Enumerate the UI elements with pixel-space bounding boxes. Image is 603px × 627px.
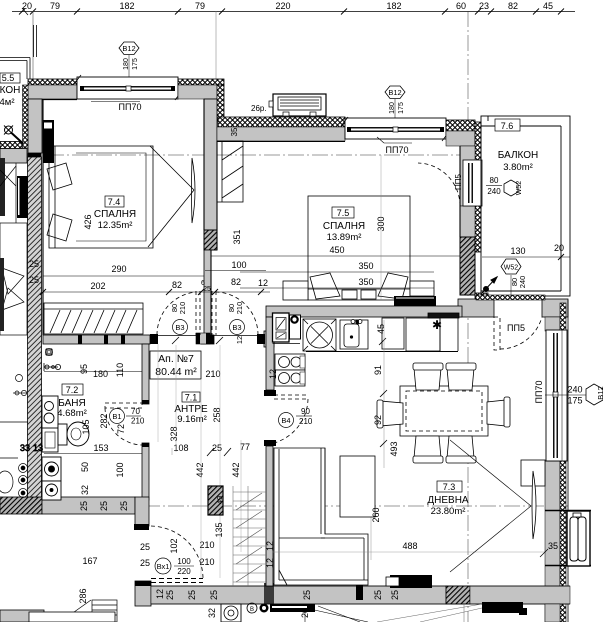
svg-text:45: 45 <box>543 1 553 11</box>
svg-text:12: 12 <box>265 558 275 568</box>
svg-text:B3: B3 <box>232 323 241 332</box>
svg-text:80: 80 <box>490 176 499 185</box>
svg-text:210: 210 <box>299 417 313 426</box>
svg-text:9.16m²: 9.16m² <box>177 414 207 425</box>
svg-text:7.1: 7.1 <box>185 393 198 403</box>
svg-text:ДНЕВНА: ДНЕВНА <box>427 495 469 506</box>
svg-text:B1: B1 <box>112 412 121 421</box>
svg-text:80.44 m²: 80.44 m² <box>155 366 197 378</box>
svg-text:350: 350 <box>358 277 373 287</box>
svg-text:442: 442 <box>231 462 241 477</box>
svg-text:100: 100 <box>115 462 125 477</box>
svg-text:ПП70: ПП70 <box>534 381 544 404</box>
svg-text:210: 210 <box>235 302 244 315</box>
svg-text:175: 175 <box>567 396 582 406</box>
svg-text:70: 70 <box>131 407 140 416</box>
svg-text:110: 110 <box>115 363 125 377</box>
svg-text:82: 82 <box>231 277 241 287</box>
svg-text:91: 91 <box>373 365 383 375</box>
svg-text:B4: B4 <box>281 416 290 425</box>
svg-text:328: 328 <box>169 426 179 441</box>
svg-text:4м²: 4м² <box>0 97 14 108</box>
svg-text:12: 12 <box>265 541 275 551</box>
svg-text:105: 105 <box>81 419 91 434</box>
svg-text:493: 493 <box>389 441 399 456</box>
svg-text:95: 95 <box>79 364 89 374</box>
svg-text:90: 90 <box>301 407 310 416</box>
svg-text:167: 167 <box>82 556 97 566</box>
svg-text:35: 35 <box>230 127 239 136</box>
svg-text:25: 25 <box>373 590 383 600</box>
svg-text:26р.: 26р. <box>251 104 267 113</box>
svg-text:50: 50 <box>80 462 90 472</box>
svg-text:45: 45 <box>376 324 386 334</box>
svg-text:5.5: 5.5 <box>2 73 15 83</box>
svg-text:СПАЛНЯ: СПАЛНЯ <box>323 221 365 232</box>
svg-text:СПАЛНЯ: СПАЛНЯ <box>94 209 136 220</box>
svg-text:3.80m²: 3.80m² <box>503 162 533 173</box>
svg-text:ПП70: ПП70 <box>386 145 409 155</box>
svg-text:32: 32 <box>207 608 217 618</box>
svg-text:23.80m²: 23.80m² <box>431 506 466 517</box>
svg-text:13: 13 <box>33 443 43 453</box>
svg-text:488: 488 <box>402 541 417 551</box>
svg-text:✱: ✱ <box>432 318 442 332</box>
svg-text:108: 108 <box>173 443 188 453</box>
svg-text:100: 100 <box>231 260 246 270</box>
svg-text:210: 210 <box>199 557 214 567</box>
svg-text:B12: B12 <box>388 88 401 97</box>
svg-text:350: 350 <box>358 261 373 271</box>
svg-text:258: 258 <box>212 407 222 422</box>
svg-text:25: 25 <box>140 558 150 568</box>
svg-text:4.68m²: 4.68m² <box>57 408 87 419</box>
svg-text:240: 240 <box>518 276 527 289</box>
svg-text:12: 12 <box>155 589 165 599</box>
svg-text:БАЛКОН: БАЛКОН <box>498 150 539 161</box>
svg-text:82: 82 <box>508 1 518 11</box>
svg-text:35: 35 <box>548 541 558 551</box>
svg-text:72: 72 <box>116 424 126 434</box>
svg-text:351: 351 <box>232 229 242 244</box>
svg-text:25: 25 <box>119 501 129 511</box>
svg-text:7.3: 7.3 <box>443 482 456 492</box>
svg-text:77: 77 <box>240 442 250 452</box>
svg-text:240: 240 <box>487 187 501 196</box>
svg-text:20: 20 <box>554 243 564 253</box>
svg-text:КОН: КОН <box>0 85 20 96</box>
svg-text:260: 260 <box>371 507 381 522</box>
svg-text:Вх1: Вх1 <box>157 562 170 571</box>
svg-text:25: 25 <box>203 286 211 293</box>
svg-text:153: 153 <box>93 443 108 453</box>
svg-text:100: 100 <box>177 557 191 566</box>
svg-text:B12: B12 <box>122 44 135 53</box>
svg-text:7.2: 7.2 <box>66 385 79 395</box>
svg-text:282: 282 <box>99 413 109 428</box>
svg-text:33: 33 <box>20 443 30 453</box>
svg-text:60: 60 <box>456 1 466 11</box>
svg-text:240: 240 <box>567 385 582 395</box>
svg-text:ПП70: ПП70 <box>119 102 142 112</box>
svg-text:286: 286 <box>78 588 88 603</box>
svg-text:426: 426 <box>83 214 93 229</box>
svg-text:49: 49 <box>215 496 224 504</box>
svg-text:182: 182 <box>119 1 134 11</box>
svg-text:220: 220 <box>275 1 290 11</box>
svg-text:135: 135 <box>214 522 224 537</box>
svg-text:W52: W52 <box>504 265 519 272</box>
svg-text:210: 210 <box>131 417 145 426</box>
svg-text:220: 220 <box>177 567 191 576</box>
svg-text:25: 25 <box>79 501 89 511</box>
svg-text:12: 12 <box>258 278 268 288</box>
svg-text:182: 182 <box>386 1 401 11</box>
svg-text:175: 175 <box>398 102 405 114</box>
svg-text:12: 12 <box>268 369 278 379</box>
svg-text:32: 32 <box>80 485 90 495</box>
svg-text:ПП5: ПП5 <box>507 323 525 333</box>
svg-text:79: 79 <box>195 1 205 11</box>
svg-text:92: 92 <box>373 415 383 425</box>
svg-text:180: 180 <box>93 369 108 379</box>
svg-text:79: 79 <box>50 1 60 11</box>
svg-text:B: B <box>250 607 254 613</box>
svg-text:13.89m²: 13.89m² <box>327 232 362 243</box>
svg-text:25: 25 <box>390 590 400 600</box>
svg-text:25: 25 <box>165 590 175 600</box>
svg-text:7.6: 7.6 <box>501 121 514 131</box>
svg-text:25: 25 <box>99 501 109 511</box>
svg-text:175: 175 <box>132 58 139 70</box>
svg-text:7.5: 7.5 <box>337 208 350 218</box>
svg-text:210: 210 <box>205 369 220 379</box>
svg-text:25: 25 <box>29 259 39 269</box>
svg-text:450: 450 <box>329 245 344 255</box>
svg-text:25: 25 <box>29 275 39 285</box>
svg-text:102: 102 <box>169 538 179 553</box>
svg-text:7.4: 7.4 <box>108 197 121 207</box>
svg-text:442: 442 <box>195 462 205 477</box>
svg-text:25: 25 <box>140 542 150 552</box>
svg-text:82: 82 <box>172 280 182 290</box>
svg-text:12.35m²: 12.35m² <box>98 220 133 231</box>
svg-text:25: 25 <box>187 590 197 600</box>
svg-text:130: 130 <box>510 246 525 256</box>
svg-text:25: 25 <box>302 590 312 600</box>
svg-text:ПП5: ПП5 <box>454 173 463 190</box>
svg-text:210: 210 <box>199 540 214 550</box>
svg-text:B12: B12 <box>596 386 603 399</box>
svg-text:25: 25 <box>209 590 219 600</box>
svg-text:12: 12 <box>235 336 244 344</box>
svg-text:20: 20 <box>22 1 32 11</box>
svg-text:B3: B3 <box>175 323 184 332</box>
svg-text:W52: W52 <box>516 181 523 196</box>
svg-text:210: 210 <box>178 302 187 315</box>
svg-text:290: 290 <box>111 264 126 274</box>
svg-text:202: 202 <box>90 281 105 291</box>
svg-text:23: 23 <box>479 1 489 11</box>
